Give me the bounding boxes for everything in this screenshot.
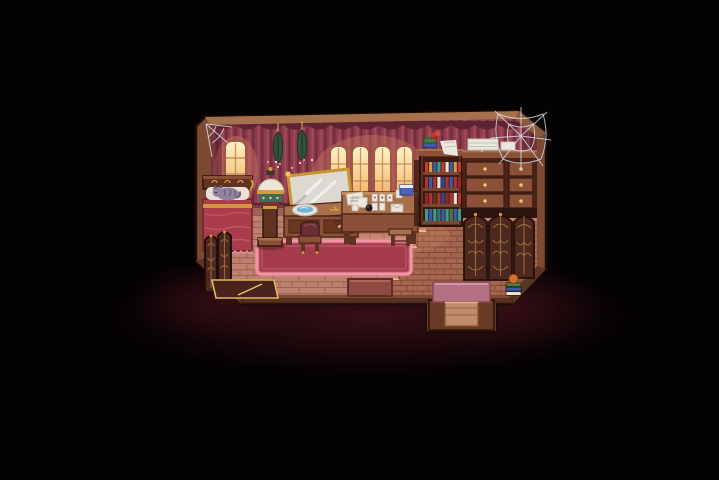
book-spine — [429, 193, 432, 204]
book-spine — [433, 193, 436, 204]
book-spine — [441, 209, 444, 221]
stacked-book — [506, 287, 521, 291]
carved-panel-2[interactable] — [489, 213, 512, 280]
carved-panel-3[interactable] — [514, 216, 534, 278]
game-viewport — [0, 0, 719, 480]
book-spine — [429, 162, 432, 172]
book-spine — [446, 177, 449, 188]
inkwell[interactable] — [366, 205, 373, 212]
book-spine — [450, 209, 453, 221]
wash-basin[interactable] — [293, 204, 318, 216]
book-spine — [437, 162, 440, 172]
book-spine — [425, 193, 428, 204]
book-spine — [446, 209, 449, 221]
book-spine — [433, 177, 436, 188]
book-spine — [429, 177, 432, 188]
pumpkin[interactable] — [509, 274, 518, 283]
book-spine — [441, 162, 444, 172]
book-spine — [437, 193, 440, 204]
book-spine — [458, 177, 461, 188]
blue-box[interactable] — [400, 185, 413, 195]
gold-bench[interactable] — [212, 280, 278, 298]
book-spine — [446, 162, 449, 172]
mirror-finial — [285, 171, 290, 176]
door-mat-stem[interactable] — [445, 302, 478, 326]
book-spine — [429, 209, 432, 221]
mug[interactable] — [352, 205, 358, 211]
carved-screens[interactable] — [464, 213, 534, 280]
carved-panel-1[interactable] — [464, 213, 487, 280]
book-spine — [454, 209, 457, 221]
doorway[interactable] — [429, 282, 494, 330]
drawer-column-left[interactable] — [466, 162, 504, 208]
book-spine — [441, 193, 444, 204]
bed-gold-band — [203, 204, 252, 208]
book-spine — [454, 177, 457, 188]
book-spine — [458, 193, 461, 204]
book-spine — [450, 193, 453, 204]
book-spine — [458, 209, 461, 221]
book-spine — [433, 162, 436, 172]
stacked-book — [506, 292, 521, 296]
book-spine — [450, 177, 453, 188]
book-spine — [450, 162, 453, 172]
book-spine — [425, 209, 428, 221]
book-spine — [454, 162, 457, 172]
book-spine — [437, 177, 440, 188]
game-scene — [0, 0, 719, 480]
book-spine — [446, 193, 449, 204]
door-mat-top[interactable] — [433, 282, 490, 302]
book-spine — [454, 193, 457, 204]
book-spine — [425, 177, 428, 188]
book-spine — [433, 209, 436, 221]
book-spine — [441, 177, 444, 188]
book-spine — [425, 162, 428, 172]
book-spine — [458, 162, 461, 172]
book-spine — [437, 209, 440, 221]
